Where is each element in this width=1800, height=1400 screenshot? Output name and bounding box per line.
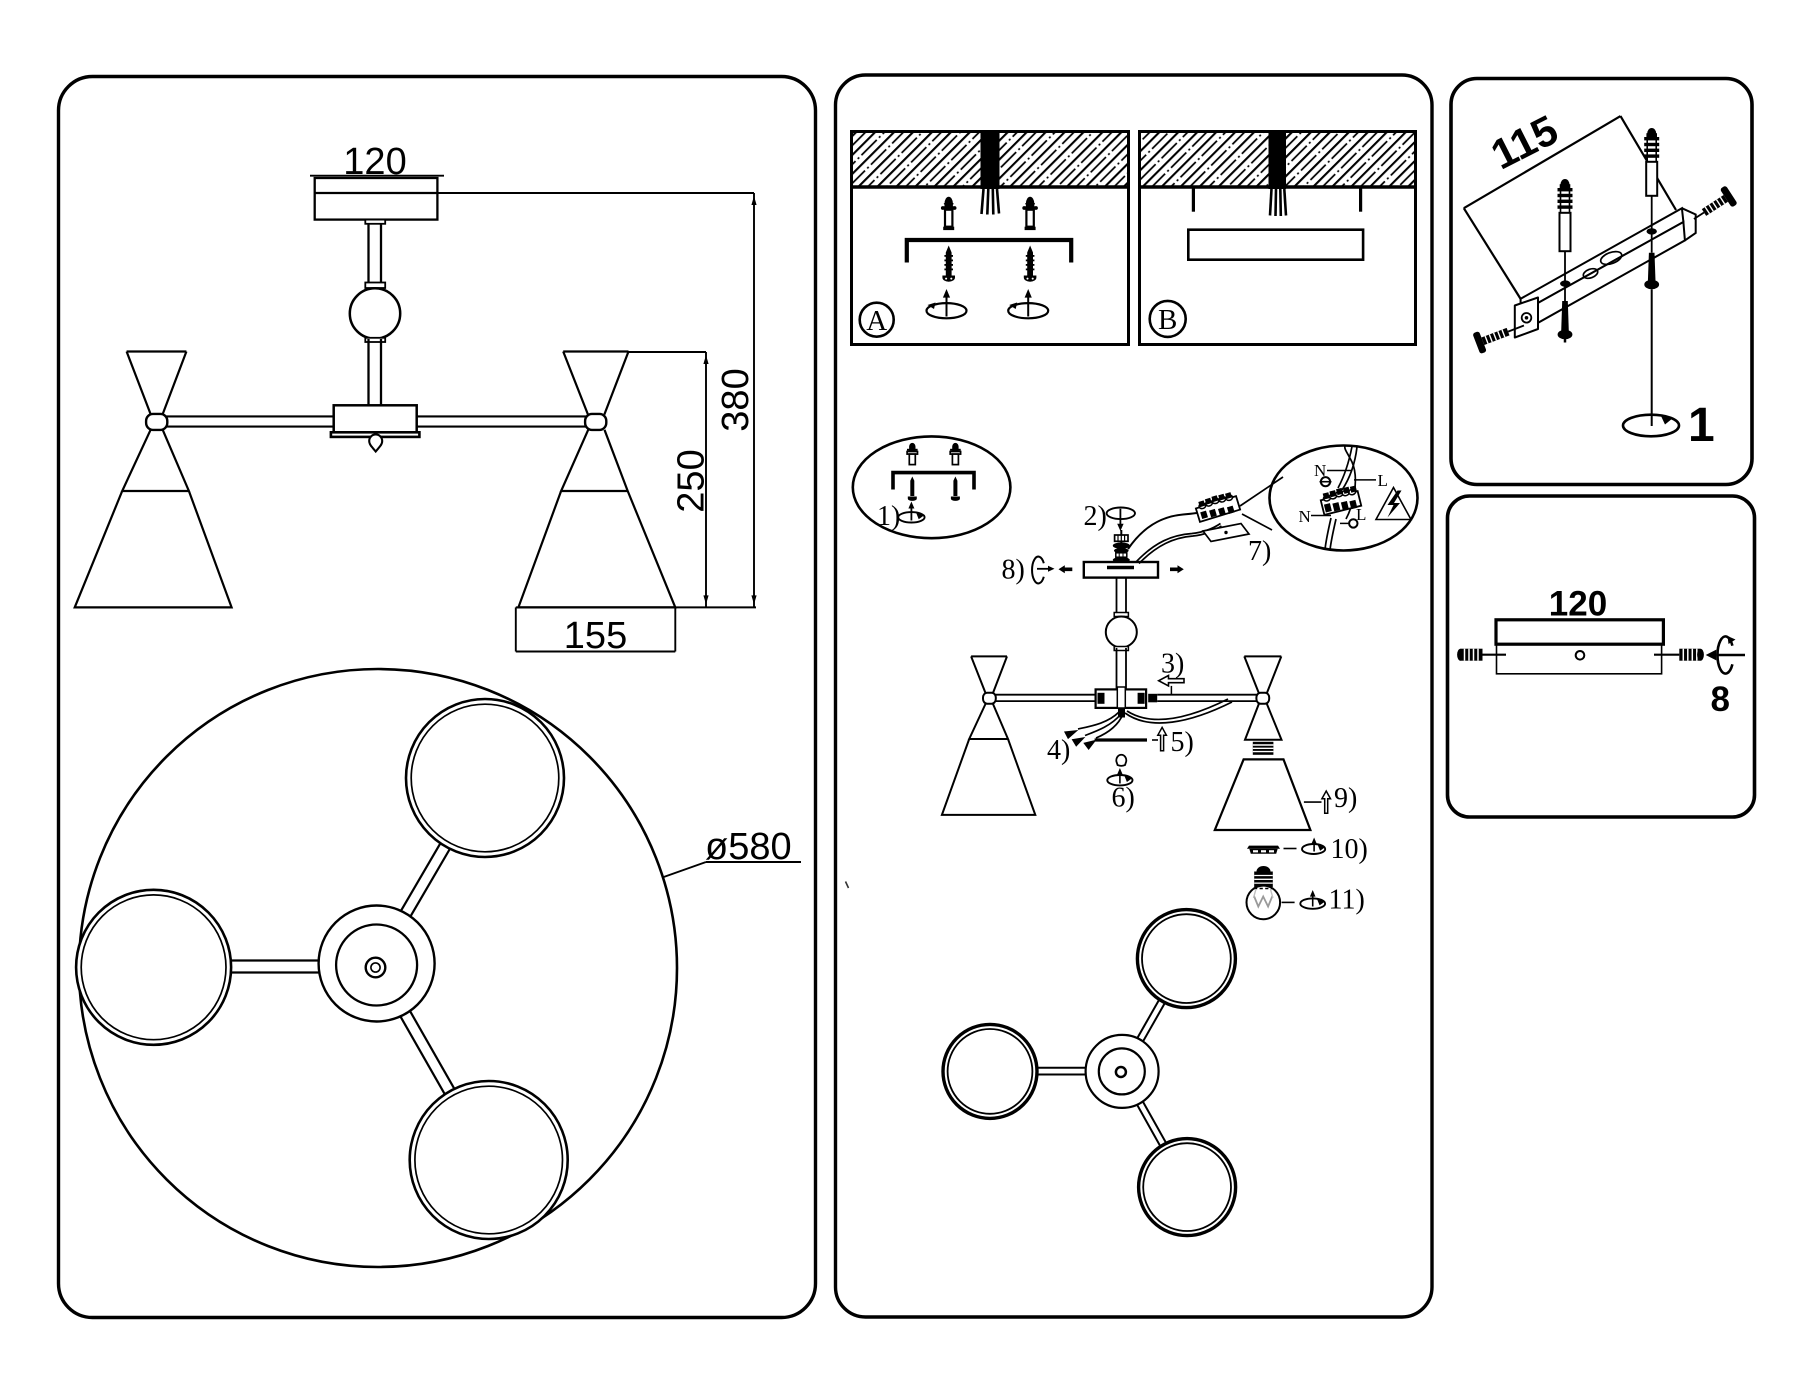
svg-text:120: 120 (343, 141, 406, 183)
svg-text:3): 3) (1161, 649, 1184, 680)
svg-text:2): 2) (1084, 501, 1107, 532)
svg-text:9): 9) (1334, 783, 1357, 814)
svg-text:B: B (1158, 304, 1177, 336)
svg-text:8): 8) (1002, 555, 1025, 586)
svg-text:155: 155 (564, 615, 627, 657)
svg-text:N: N (1299, 507, 1311, 526)
svg-text:1): 1) (877, 501, 900, 532)
svg-text:L: L (1356, 505, 1366, 524)
svg-text:L: L (1378, 471, 1388, 490)
svg-text:N: N (1314, 461, 1326, 480)
svg-text:6): 6) (1112, 783, 1135, 814)
svg-text:115: 115 (1484, 106, 1566, 179)
svg-text:ø580: ø580 (705, 826, 792, 868)
svg-text:8: 8 (1711, 680, 1730, 719)
svg-text:380: 380 (715, 368, 757, 431)
svg-text:120: 120 (1549, 585, 1607, 624)
svg-text:7): 7) (1248, 536, 1271, 567)
svg-text:1: 1 (1688, 399, 1715, 452)
svg-text:11): 11) (1329, 885, 1365, 916)
svg-text:10): 10) (1331, 834, 1368, 865)
svg-text:250: 250 (671, 449, 713, 512)
svg-text:A: A (866, 305, 887, 337)
svg-text:4): 4) (1047, 735, 1070, 766)
svg-text:5): 5) (1171, 727, 1194, 758)
